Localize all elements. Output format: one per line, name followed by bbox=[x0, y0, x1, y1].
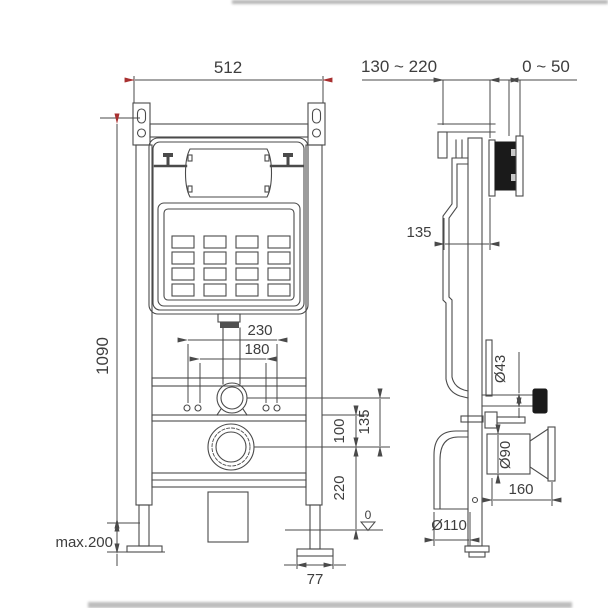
dim-foot-width: 77 bbox=[307, 571, 324, 588]
dim-floor-level: 0 bbox=[365, 508, 372, 522]
dim-wall-finish: 0 ~ 50 bbox=[522, 57, 570, 76]
cistern-frame-drawing: 512 1090 230 180 bbox=[0, 0, 608, 608]
technical-drawing-page: 512 1090 230 180 bbox=[0, 0, 608, 608]
dim-frame-height: 1090 bbox=[93, 337, 112, 375]
dim-inlet-diameter: Ø43 bbox=[492, 355, 509, 383]
dim-bolt-inner: 180 bbox=[244, 341, 269, 358]
dim-drain-diameter: Ø110 bbox=[431, 517, 467, 534]
dim-frame-width: 512 bbox=[214, 58, 242, 77]
dim-bend-to-drain: 135 bbox=[356, 409, 373, 434]
dim-flush-pipe-diameter: Ø90 bbox=[497, 441, 514, 469]
dim-flush-pipe-length: 160 bbox=[508, 481, 533, 498]
dim-drain-height: 220 bbox=[331, 475, 348, 500]
dim-rail-to-drain: 100 bbox=[331, 418, 348, 443]
outlet-seal bbox=[220, 322, 239, 328]
dim-install-depth: 130 ~ 220 bbox=[361, 57, 437, 76]
dim-tank-depth: 135 bbox=[406, 224, 431, 241]
inlet-valve-cap bbox=[533, 389, 547, 413]
dim-bolt-outer: 230 bbox=[247, 322, 272, 339]
dim-leg-adjustment: max.200 bbox=[55, 534, 113, 551]
